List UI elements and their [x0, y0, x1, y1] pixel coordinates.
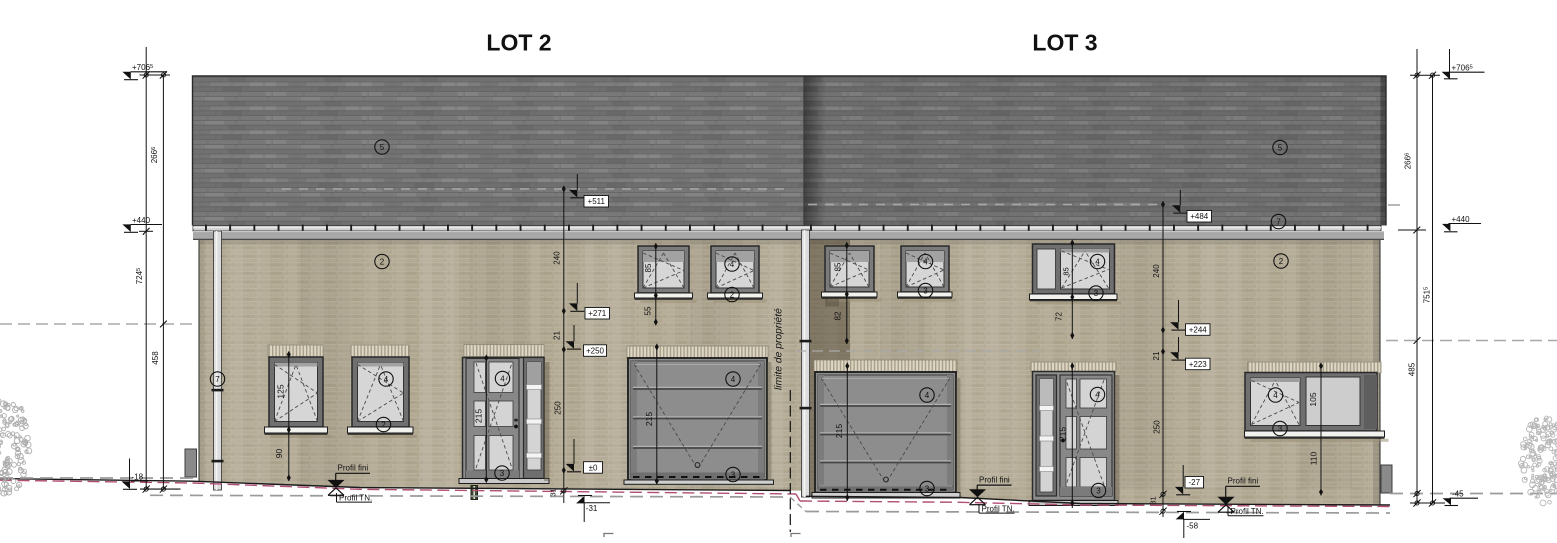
- svg-text:2: 2: [730, 290, 735, 299]
- svg-text:85: 85: [833, 262, 842, 271]
- svg-text:240: 240: [553, 251, 562, 265]
- svg-text:4: 4: [1273, 391, 1278, 400]
- svg-text:125: 125: [276, 384, 286, 398]
- svg-text:250: 250: [1153, 420, 1162, 434]
- svg-text:Profil TN.: Profil TN.: [982, 504, 1015, 513]
- svg-text:458: 458: [151, 351, 160, 365]
- svg-text:72: 72: [1054, 312, 1063, 321]
- svg-text:2: 2: [1279, 257, 1284, 266]
- svg-text:85: 85: [644, 263, 653, 272]
- svg-text:215: 215: [644, 412, 654, 426]
- svg-text:LOT 3: LOT 3: [1032, 30, 1097, 56]
- svg-text:+511: +511: [588, 197, 606, 206]
- svg-text:+223: +223: [1189, 360, 1208, 369]
- svg-text:4: 4: [923, 257, 928, 266]
- svg-text:-27: -27: [1188, 478, 1200, 487]
- svg-text:3: 3: [500, 469, 505, 478]
- svg-text:82: 82: [834, 311, 843, 320]
- svg-text:4: 4: [1095, 390, 1100, 399]
- svg-text:4: 4: [500, 374, 505, 383]
- svg-text:55: 55: [644, 306, 653, 315]
- svg-text:240: 240: [1152, 264, 1161, 278]
- svg-text:3: 3: [923, 286, 928, 295]
- svg-text:5: 5: [380, 143, 385, 152]
- svg-text:Profil fini: Profil fini: [338, 464, 369, 473]
- svg-text:±0: ±0: [589, 463, 598, 472]
- svg-text:21: 21: [1152, 351, 1161, 360]
- svg-text:2: 2: [380, 257, 385, 266]
- svg-text:90: 90: [274, 449, 284, 459]
- svg-text:215: 215: [474, 409, 484, 423]
- svg-text:+271: +271: [588, 309, 607, 318]
- svg-text:5: 5: [1278, 143, 1283, 152]
- svg-text:21: 21: [553, 331, 562, 340]
- svg-text:85: 85: [1062, 267, 1071, 275]
- svg-text:7: 7: [215, 375, 220, 384]
- svg-text:+250: +250: [586, 346, 605, 355]
- svg-text:4: 4: [1095, 257, 1100, 266]
- svg-text:4: 4: [730, 260, 735, 269]
- svg-text:3: 3: [1278, 424, 1283, 433]
- svg-text:+440: +440: [1452, 215, 1471, 224]
- svg-text:250: 250: [554, 401, 563, 415]
- svg-text:4: 4: [925, 391, 930, 400]
- svg-text:Profil TN.: Profil TN.: [339, 493, 372, 502]
- svg-text:+440: +440: [132, 216, 151, 225]
- svg-text:LOT 2: LOT 2: [486, 30, 551, 56]
- svg-text:215: 215: [834, 424, 844, 438]
- svg-text:4: 4: [384, 375, 389, 384]
- svg-text:3: 3: [731, 470, 736, 479]
- svg-text:485: 485: [1408, 362, 1417, 376]
- svg-text:Profil fini: Profil fini: [1228, 477, 1259, 486]
- svg-text:-58: -58: [1187, 522, 1199, 531]
- svg-text:3: 3: [1096, 486, 1101, 495]
- svg-text:215: 215: [1057, 427, 1067, 441]
- svg-text:-31: -31: [586, 504, 598, 513]
- svg-text:-45: -45: [1452, 490, 1464, 499]
- svg-text:31: 31: [549, 488, 558, 496]
- svg-text:+484: +484: [1190, 212, 1209, 221]
- svg-text:3: 3: [1094, 289, 1099, 298]
- svg-text:3: 3: [925, 484, 930, 493]
- svg-text:-18: -18: [132, 473, 144, 482]
- svg-text:4: 4: [731, 375, 736, 384]
- svg-text:Profil TN.: Profil TN.: [1231, 507, 1264, 516]
- svg-text:110: 110: [1308, 451, 1318, 465]
- svg-text:7: 7: [1276, 217, 1281, 226]
- svg-text:Profil fini: Profil fini: [979, 475, 1010, 484]
- svg-text:31: 31: [1149, 496, 1158, 504]
- svg-text:limite de propriété: limite de propriété: [774, 308, 785, 390]
- svg-text:2: 2: [381, 420, 386, 429]
- svg-text:+244: +244: [1189, 325, 1208, 334]
- svg-text:105: 105: [1308, 392, 1318, 406]
